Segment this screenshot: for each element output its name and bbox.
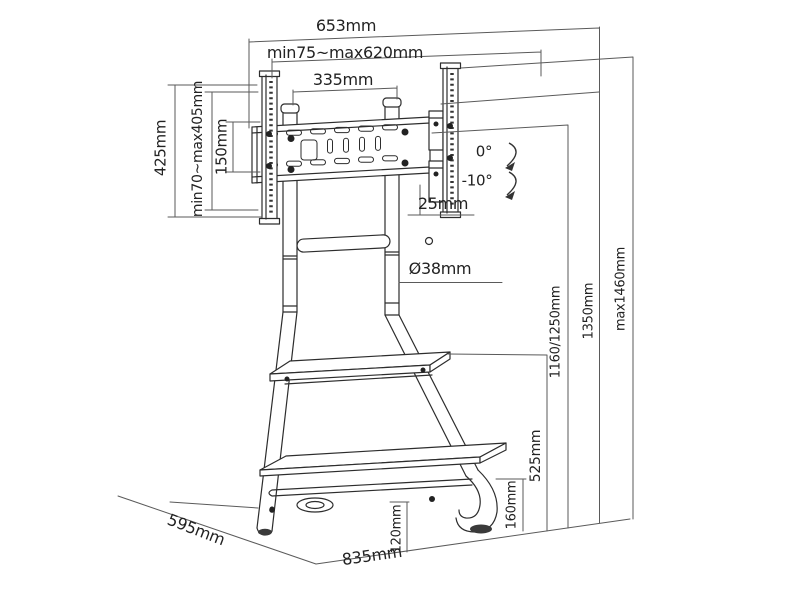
dim-label-tv-center-height: 1160/1250mm [550, 286, 563, 379]
dim-1350-line [441, 92, 599, 104]
dim-label-pole-diameter: Ø38mm [409, 261, 472, 277]
stand-drawing [252, 63, 506, 535]
bottom-shelf [260, 443, 506, 512]
dim-label-pole-spacing: 335mm [313, 72, 373, 88]
handle-bar [297, 235, 391, 253]
vesa-crossbar [252, 117, 430, 183]
left-tv-rail [260, 71, 280, 224]
dim-label-rail-hole-spacing: 150mm [215, 119, 230, 175]
hook-brackets [429, 111, 443, 202]
dim-label-hook-offset: 25mm [418, 196, 468, 212]
dim-label-shelf-height: 525mm [529, 430, 543, 483]
tilt-label-lower: -10° [462, 174, 493, 189]
right-leg-and-foot [385, 315, 497, 534]
dim-label-overall-width: 653mm [316, 18, 376, 34]
dim-label-vesa-width-range: min75~max620mm [267, 45, 423, 61]
tilt-arrows [505, 143, 516, 200]
tilt-label-upper: 0° [476, 145, 492, 160]
dim-label-vesa-height-range: min70~max405mm [191, 81, 205, 217]
dim-label-max-height: max1460mm [615, 247, 628, 331]
caster-wheel [297, 498, 333, 512]
pole-screw-hole [426, 238, 433, 245]
dim-label-pole-top-height: 1350mm [583, 283, 596, 340]
left-leg [257, 312, 297, 535]
dim-label-foot-height: 160mm [506, 481, 519, 530]
middle-shelf [270, 352, 450, 384]
dim-label-bracket-height: 425mm [154, 120, 169, 176]
dimension-drawing-page: 653mm min75~max620mm 335mm 425mm min70~m… [0, 0, 800, 600]
